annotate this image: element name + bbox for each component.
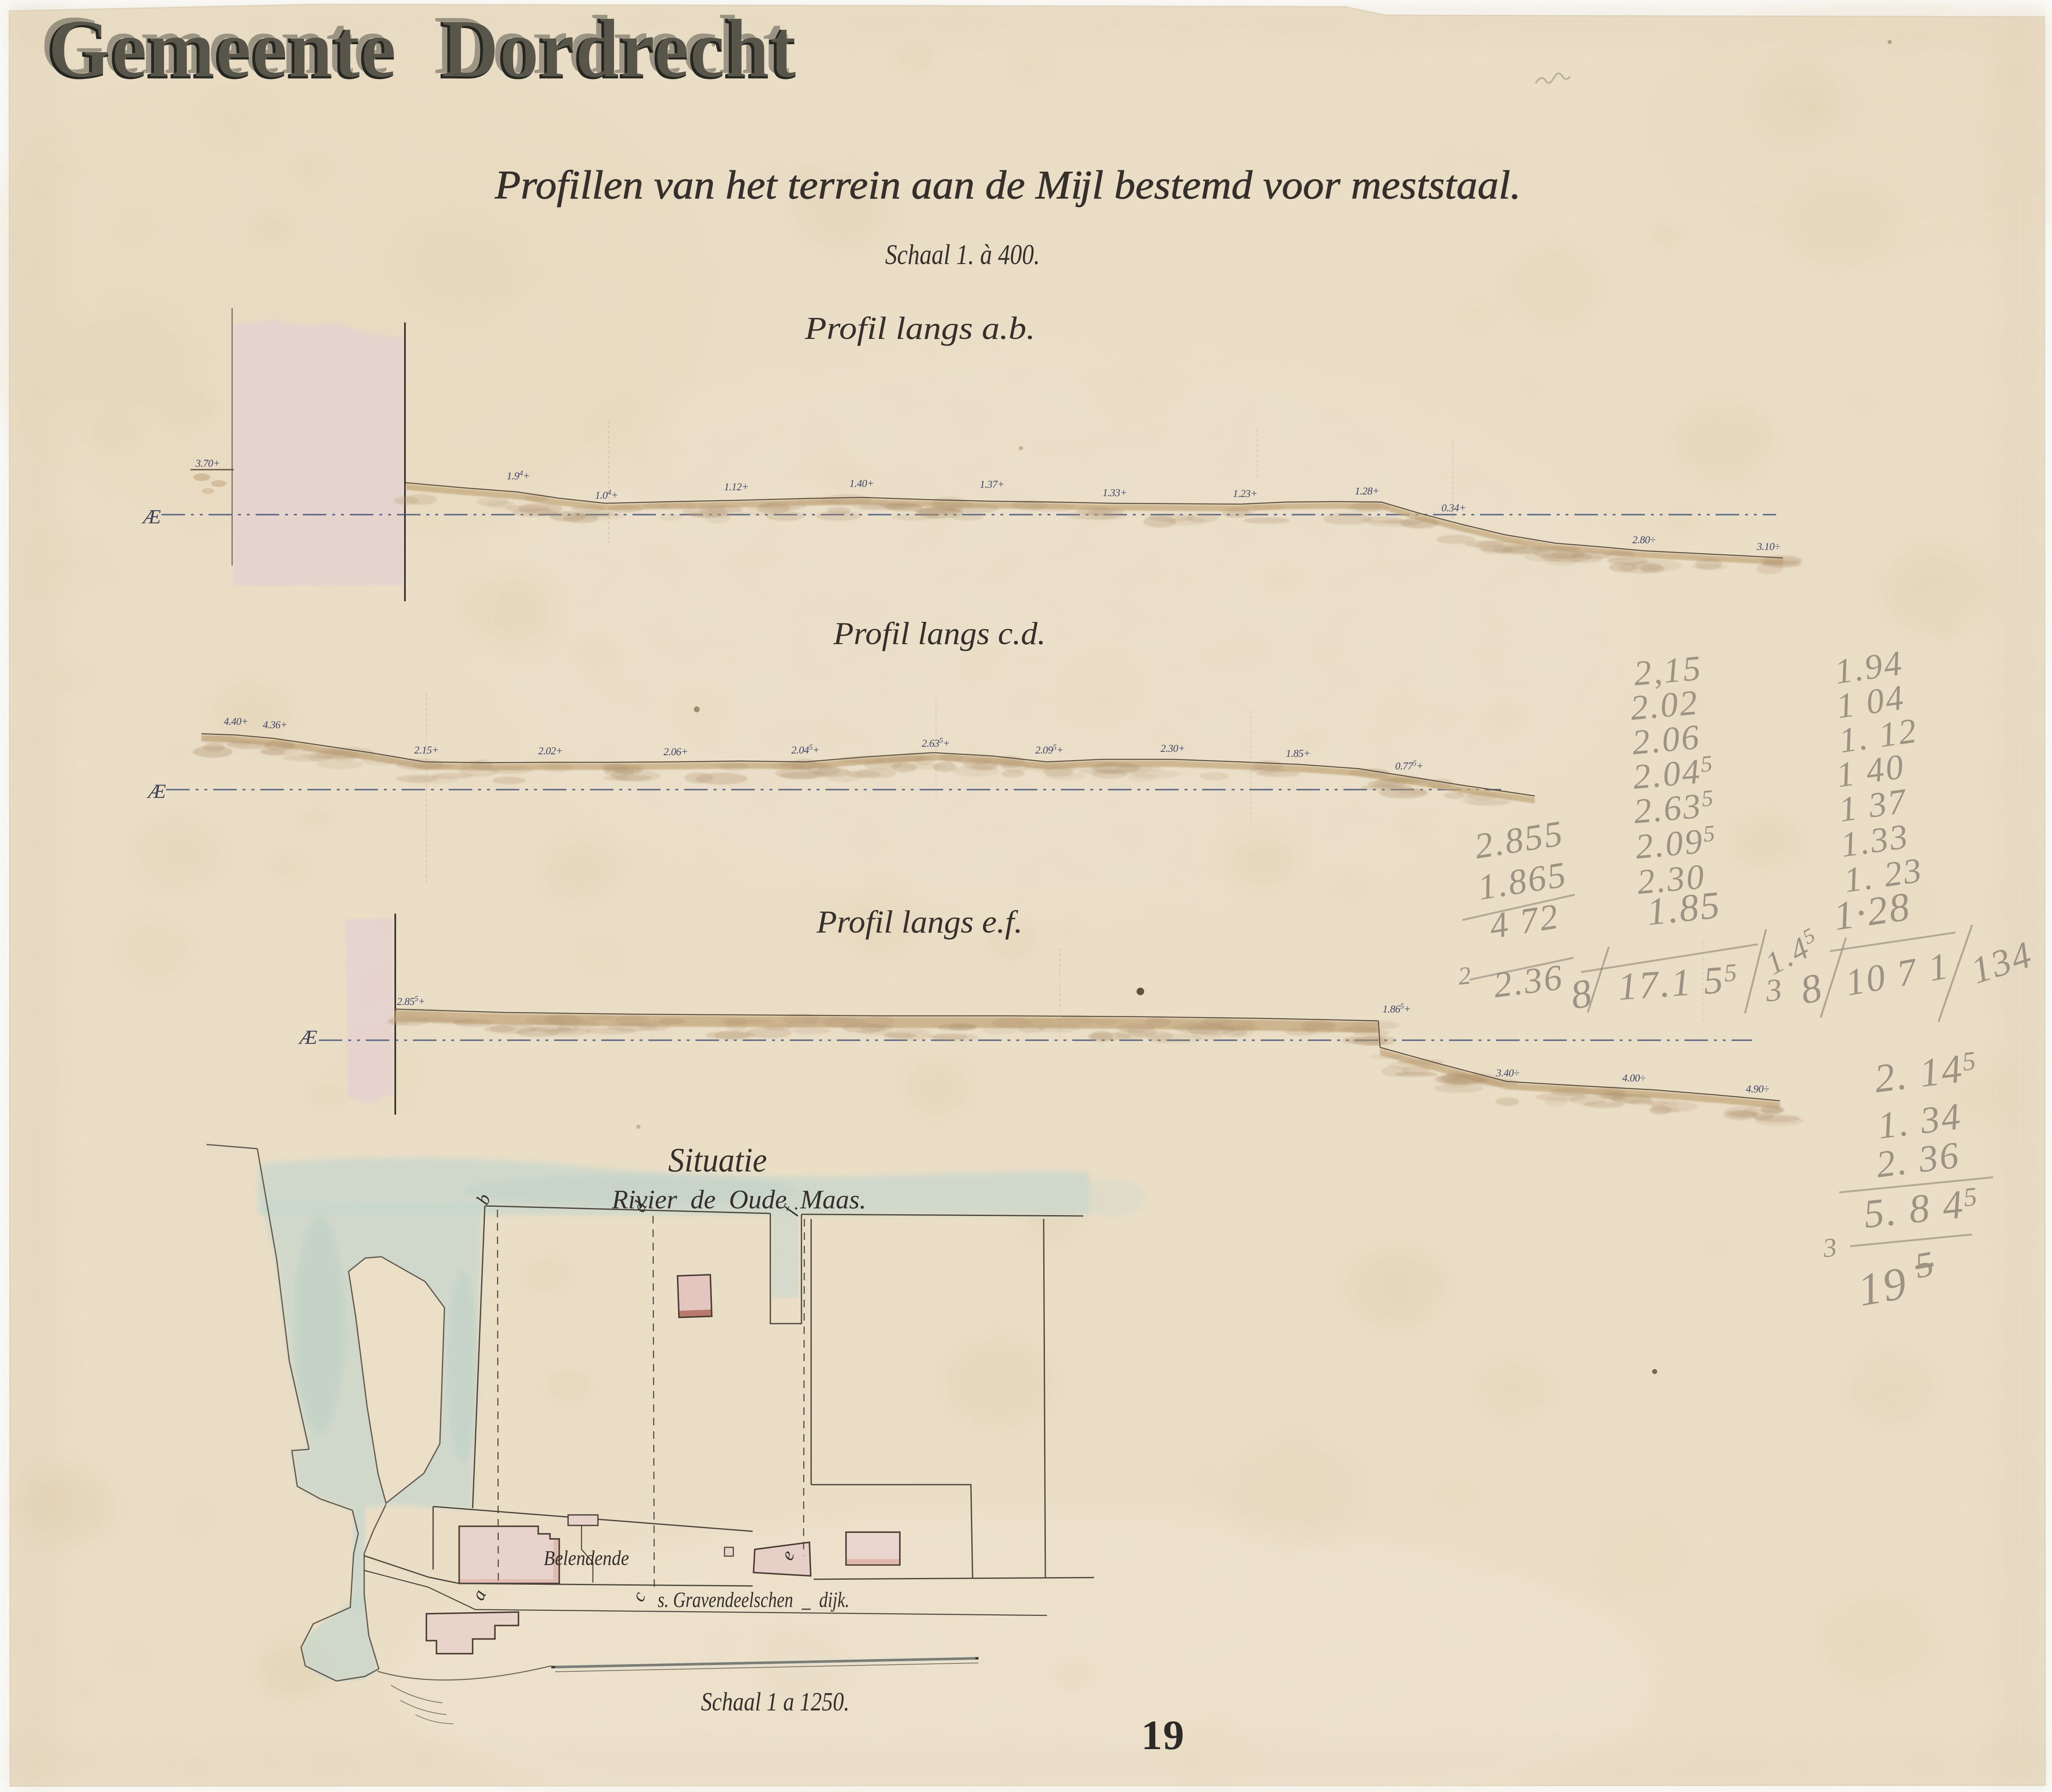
- svg-text:1.23+: 1.23+: [1233, 488, 1257, 500]
- svg-text:1.28+: 1.28+: [1355, 486, 1379, 497]
- svg-text:19: 19: [1141, 1712, 1185, 1758]
- svg-text:2.045+: 2.045+: [791, 743, 820, 756]
- svg-text:Profil langs a.b.: Profil langs a.b.: [804, 311, 1035, 346]
- svg-text:4.36+: 4.36+: [263, 719, 287, 731]
- svg-text:4.90÷: 4.90÷: [1746, 1084, 1769, 1095]
- svg-text:4.40+: 4.40+: [224, 716, 248, 727]
- svg-text:1.37+: 1.37+: [980, 479, 1004, 490]
- svg-text:Profillen van het terrein aan: Profillen van het terrein aan de Mĳl bes…: [494, 162, 1521, 207]
- svg-text:1.85: 1.85: [1645, 883, 1723, 933]
- svg-text:1.33+: 1.33+: [1103, 487, 1127, 499]
- svg-text:Gemeente: Gemeente: [48, 2, 397, 94]
- svg-text:Æ: Æ: [146, 780, 166, 803]
- svg-text:Schaal 1 a 1250.: Schaal 1 a 1250.: [701, 1688, 849, 1716]
- svg-text:0.775+: 0.775+: [1395, 759, 1423, 772]
- svg-text:Profil langs c.d.: Profil langs c.d.: [833, 616, 1046, 651]
- svg-text:s. Gravendeelschen _ dijk.: s. Gravendeelschen _ dijk.: [658, 1588, 849, 1612]
- svg-text:1.94+: 1.94+: [507, 469, 530, 482]
- svg-text:1.85+: 1.85+: [1286, 748, 1310, 759]
- svg-text:Situatie: Situatie: [668, 1141, 767, 1179]
- svg-text:2.15+: 2.15+: [414, 745, 439, 756]
- svg-text:Profil langs e.f.: Profil langs e.f.: [816, 904, 1023, 940]
- svg-text:Æ: Æ: [141, 506, 161, 528]
- svg-text:1.12+: 1.12+: [724, 481, 748, 493]
- svg-text:2.36: 2.36: [1491, 957, 1566, 1005]
- svg-text:17.1 55: 17.1 55: [1616, 957, 1740, 1008]
- svg-text:2.635+: 2.635+: [922, 736, 950, 749]
- svg-text:19: 19: [1854, 1257, 1912, 1316]
- svg-text:Schaal 1. à 400.: Schaal 1. à 400.: [885, 238, 1040, 270]
- svg-text:2.855+: 2.855+: [397, 994, 425, 1007]
- svg-text:3.40÷: 3.40÷: [1496, 1068, 1520, 1079]
- svg-text:1.04+: 1.04+: [595, 488, 618, 501]
- svg-text:4.00÷: 4.00÷: [1622, 1073, 1646, 1084]
- svg-text:3: 3: [1821, 1232, 1840, 1263]
- svg-text:Dordrecht: Dordrecht: [442, 2, 797, 94]
- svg-text:3.70+: 3.70+: [195, 458, 220, 469]
- svg-text:Belendende: Belendende: [544, 1546, 629, 1570]
- svg-text:0.34+: 0.34+: [1441, 502, 1466, 514]
- svg-text:2.095+: 2.095+: [1035, 743, 1063, 756]
- svg-text:1.865+: 1.865+: [1383, 1002, 1411, 1015]
- svg-text:3.10÷: 3.10÷: [1756, 541, 1780, 552]
- svg-text:Æ: Æ: [298, 1026, 317, 1049]
- svg-text:2: 2: [1457, 961, 1474, 990]
- svg-text:2.02+: 2.02+: [538, 745, 563, 757]
- svg-text:1.40+: 1.40+: [849, 478, 874, 489]
- svg-text:2.80÷: 2.80÷: [1632, 534, 1656, 546]
- svg-text:2.06+: 2.06+: [664, 746, 688, 758]
- svg-text:2.30+: 2.30+: [1161, 743, 1185, 754]
